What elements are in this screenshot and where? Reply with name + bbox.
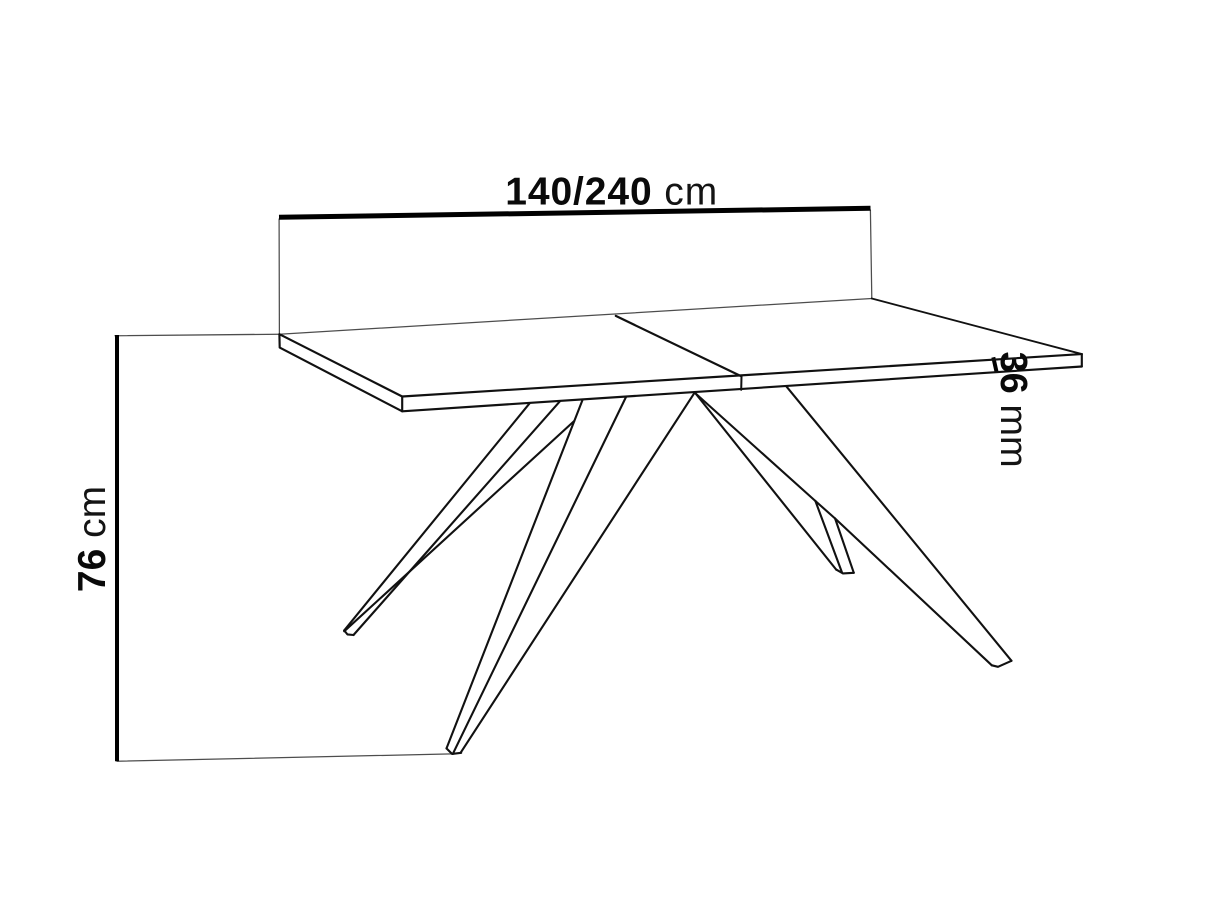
svg-text:36 mm: 36 mm bbox=[992, 352, 1034, 468]
svg-text:76 cm: 76 cm bbox=[71, 486, 114, 592]
svg-text:140/240 cm: 140/240 cm bbox=[505, 171, 718, 214]
